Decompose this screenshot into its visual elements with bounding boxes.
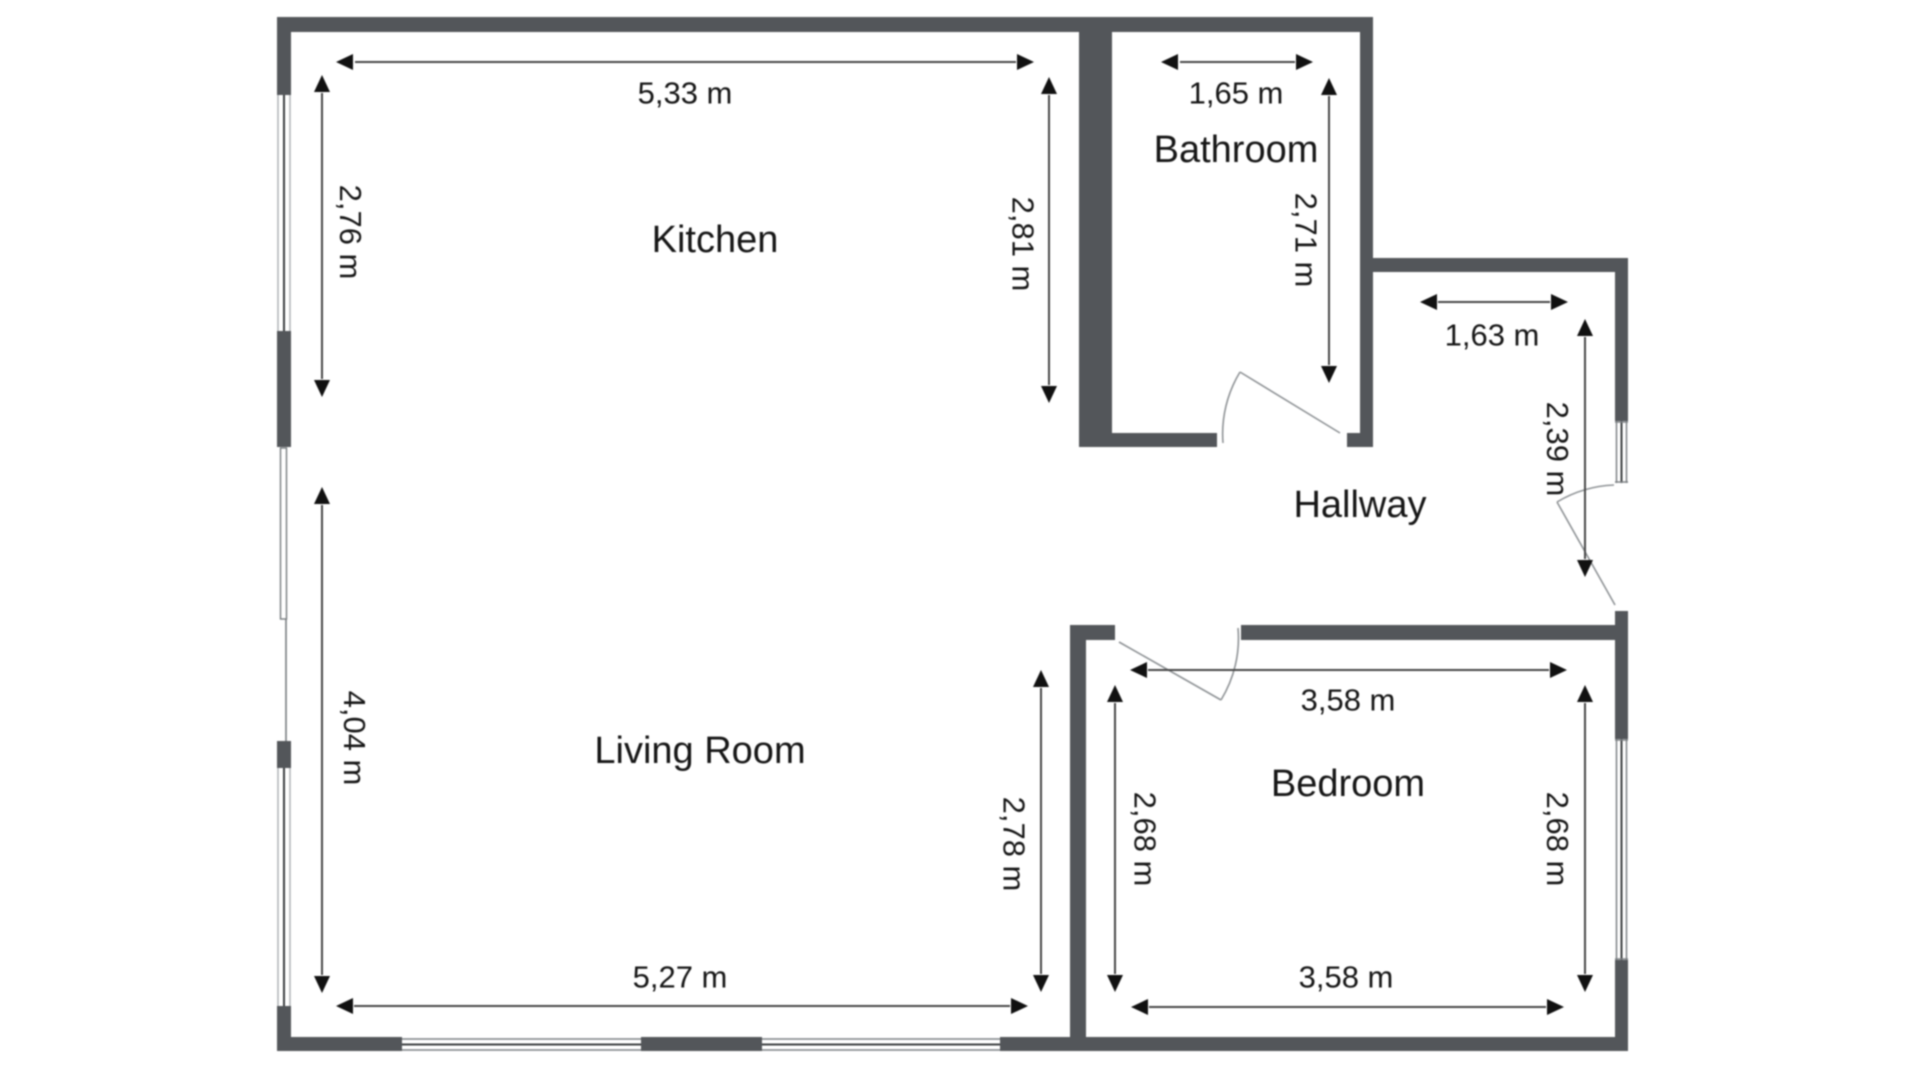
svg-text:5,33 m: 5,33 m <box>638 76 733 111</box>
svg-text:2,76 m: 2,76 m <box>333 185 368 280</box>
svg-text:Living Room: Living Room <box>594 730 805 772</box>
svg-text:3,58 m: 3,58 m <box>1299 960 1394 995</box>
svg-text:5,27 m: 5,27 m <box>633 960 728 995</box>
svg-text:Bathroom: Bathroom <box>1154 129 1319 171</box>
svg-text:2,68 m: 2,68 m <box>1128 792 1163 887</box>
svg-text:4,04 m: 4,04 m <box>337 691 372 786</box>
svg-text:1,63 m: 1,63 m <box>1445 318 1540 353</box>
svg-text:2,78 m: 2,78 m <box>997 797 1032 892</box>
svg-text:Kitchen: Kitchen <box>652 219 779 261</box>
svg-text:1,65 m: 1,65 m <box>1189 76 1284 111</box>
svg-text:Bedroom: Bedroom <box>1271 763 1425 805</box>
svg-text:2,71 m: 2,71 m <box>1289 193 1324 288</box>
svg-text:Hallway: Hallway <box>1293 484 1426 526</box>
svg-text:2,39 m: 2,39 m <box>1540 402 1575 497</box>
svg-text:3,58 m: 3,58 m <box>1301 683 1396 718</box>
svg-text:2,81 m: 2,81 m <box>1006 197 1041 292</box>
svg-text:2,68 m: 2,68 m <box>1540 792 1575 887</box>
